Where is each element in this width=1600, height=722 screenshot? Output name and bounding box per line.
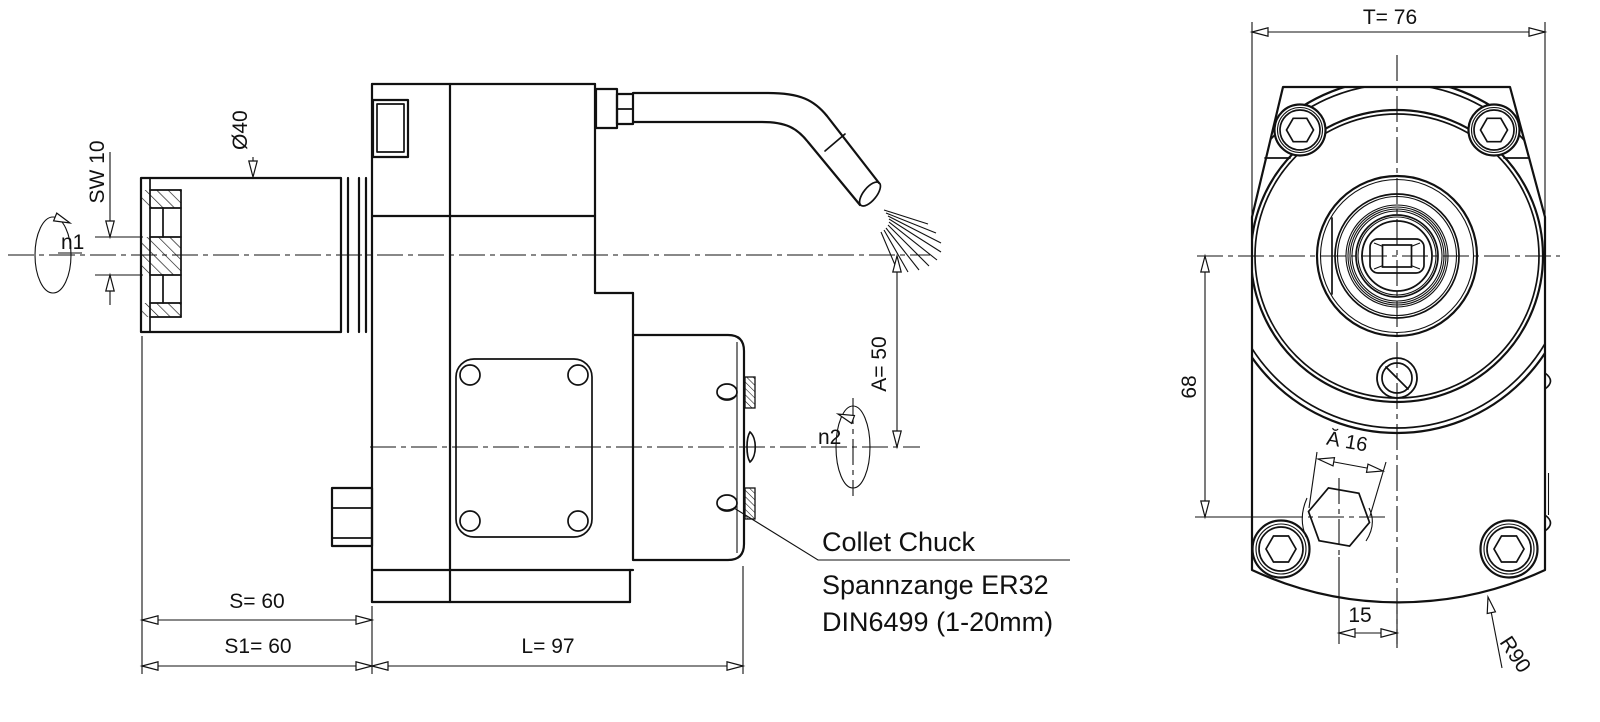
a50-label: A= 50 — [868, 336, 891, 391]
technical-drawing-page: n1 n2 SW 10 Ø40 — [0, 0, 1600, 722]
t76-label: T= 76 — [1363, 6, 1417, 29]
terminal-box — [373, 100, 408, 157]
face-bolt-icon — [717, 384, 737, 400]
dimension-l: L= 97 — [372, 566, 743, 674]
dimension-68: 68 — [1178, 256, 1292, 517]
corner-screw-bottom-left — [1253, 521, 1310, 578]
cable — [596, 89, 941, 272]
collet-callout: Collet Chuck Spannzange ER32 DIN6499 (1-… — [734, 508, 1070, 637]
cable-end-cap — [856, 179, 884, 210]
corner-screw-top-left — [1275, 105, 1326, 156]
side-view: n1 n2 SW 10 Ø40 — [8, 84, 1070, 674]
plate-screw-icon — [568, 365, 588, 385]
collet-hatch-top — [142, 190, 181, 208]
rotation-n1: n1 — [35, 213, 84, 293]
n2-label: n2 — [818, 426, 841, 449]
l-label: L= 97 — [521, 635, 574, 658]
hex16-label: Ă 16 — [1325, 427, 1370, 457]
dia40-label: Ø40 — [229, 110, 252, 150]
plate-screw-icon — [460, 511, 480, 531]
collet-hatch-mid — [142, 237, 181, 275]
terminal-box-inner — [377, 104, 404, 152]
drawing-canvas: n1 n2 SW 10 Ø40 — [0, 0, 1600, 722]
plate-screw-icon — [568, 511, 588, 531]
front-view: T= 76 68 Ă 16 15 — [1178, 6, 1574, 677]
gearbox-cover-plate — [456, 359, 592, 537]
dimension-a50: A= 50 — [868, 256, 901, 447]
dimension-s1: S1= 60 — [142, 635, 372, 670]
cable-gland — [596, 89, 617, 128]
s1-label: S1= 60 — [224, 635, 291, 658]
cable-wires — [881, 210, 941, 272]
dimension-s: S= 60 — [142, 336, 372, 674]
face-screw-section — [745, 377, 755, 408]
plate-screw-icon — [460, 365, 480, 385]
corner-screw-bottom-right — [1481, 521, 1538, 578]
d15-label: 15 — [1348, 604, 1371, 627]
sw10-label: SW 10 — [86, 140, 109, 203]
corner-screw-top-right — [1469, 105, 1520, 156]
r90-label: R90 — [1495, 632, 1535, 677]
n1-label: n1 — [61, 231, 84, 254]
callout-line1: Collet Chuck — [822, 527, 976, 557]
collet-hatch-bottom — [142, 303, 181, 317]
callout-line3: DIN6499 (1-20mm) — [822, 607, 1053, 637]
h68-label: 68 — [1178, 375, 1201, 398]
dimension-sw10: SW 10 — [86, 140, 143, 305]
dimension-dia40: Ø40 — [229, 110, 257, 177]
dimension-r90: R90 — [1484, 596, 1535, 677]
face-screw-section — [745, 488, 755, 519]
callout-line2: Spannzange ER32 — [822, 570, 1049, 600]
s-label: S= 60 — [229, 590, 284, 613]
